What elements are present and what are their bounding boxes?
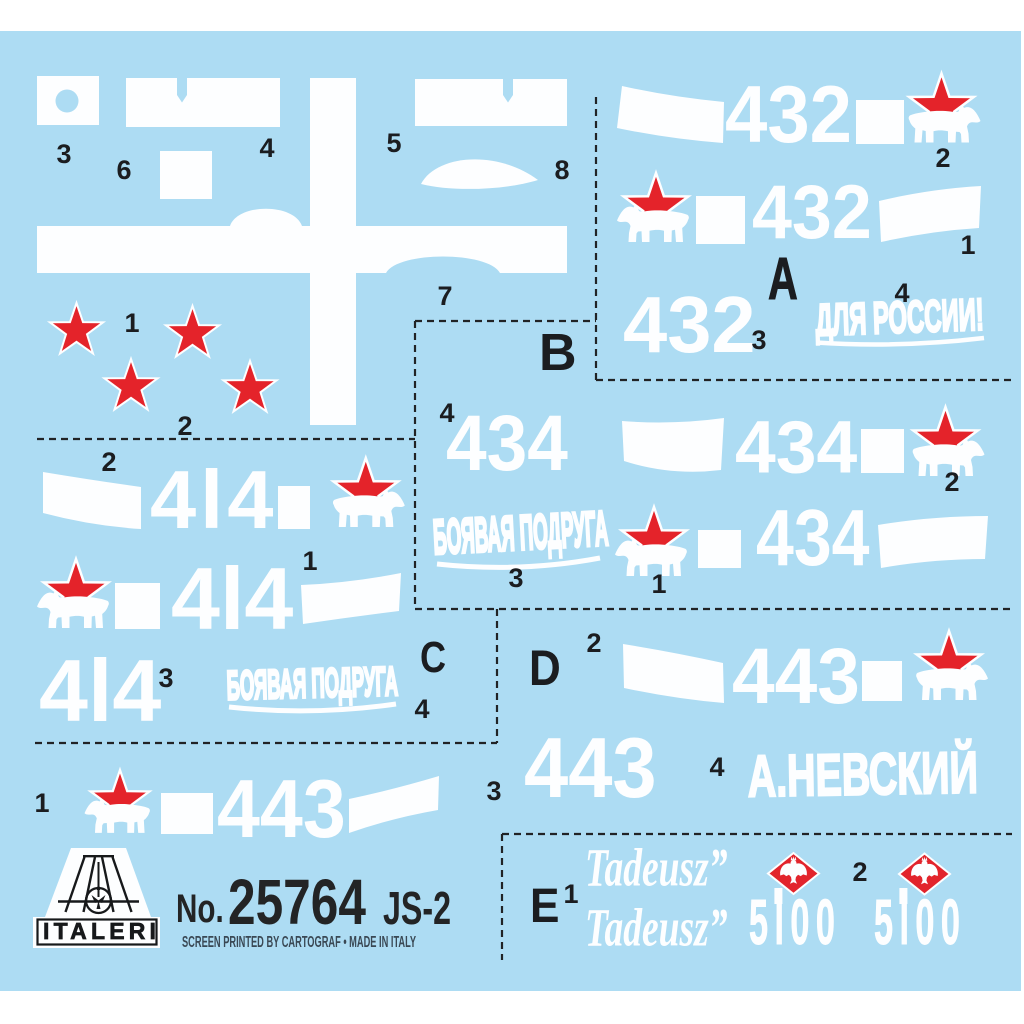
svg-text:434: 434 xyxy=(756,493,869,582)
svg-text:БОЯВАЯ ПОДРУГА: БОЯВАЯ ПОДРУГА xyxy=(432,500,610,565)
svg-text:434: 434 xyxy=(446,399,568,487)
svg-text:3: 3 xyxy=(486,776,501,806)
svg-text:443: 443 xyxy=(524,720,657,815)
svg-text:A: A xyxy=(768,246,798,312)
svg-text:2: 2 xyxy=(101,447,116,477)
svg-text:3: 3 xyxy=(56,139,71,169)
svg-text:5l00: 5l00 xyxy=(749,887,841,958)
svg-text:4: 4 xyxy=(414,694,429,724)
svg-text:8: 8 xyxy=(554,155,569,185)
svg-text:B: B xyxy=(539,324,577,382)
svg-text:2: 2 xyxy=(944,467,959,497)
svg-text:443: 443 xyxy=(732,633,860,720)
svg-text:1: 1 xyxy=(960,230,975,260)
svg-text:Tadeusz”: Tadeusz” xyxy=(585,839,728,898)
svg-text:432: 432 xyxy=(623,280,756,369)
svg-text:2: 2 xyxy=(852,857,867,887)
svg-text:25764: 25764 xyxy=(228,867,366,939)
svg-text:1: 1 xyxy=(651,569,666,599)
svg-text:3: 3 xyxy=(508,563,523,593)
svg-text:БОЯВАЯ ПОДРУГА: БОЯВАЯ ПОДРУГА xyxy=(226,658,399,709)
svg-text:4l4: 4l4 xyxy=(39,641,161,740)
svg-text:5: 5 xyxy=(386,128,401,158)
svg-text:ДЛЯ РОССИИ!: ДЛЯ РОССИИ! xyxy=(815,288,985,345)
svg-text:4: 4 xyxy=(259,133,274,163)
svg-text:1: 1 xyxy=(124,308,139,338)
svg-text:432: 432 xyxy=(725,69,852,160)
svg-text:SCREEN PRINTED BY CARTOGRAF •: SCREEN PRINTED BY CARTOGRAF • MADE IN IT… xyxy=(182,932,416,950)
svg-text:C: C xyxy=(420,633,446,682)
svg-text:3: 3 xyxy=(751,325,766,355)
svg-text:2: 2 xyxy=(935,143,950,173)
svg-text:432: 432 xyxy=(752,169,872,254)
svg-text:7: 7 xyxy=(437,281,452,311)
svg-text:6: 6 xyxy=(116,155,131,185)
svg-text:2: 2 xyxy=(586,628,601,658)
svg-text:4: 4 xyxy=(709,752,724,782)
svg-text:А.НЕВСКИЙ: А.НЕВСКИЙ xyxy=(747,738,978,809)
svg-text:D: D xyxy=(529,639,561,695)
svg-text:No.: No. xyxy=(176,887,224,931)
svg-text:5l00: 5l00 xyxy=(874,887,966,958)
svg-text:Tadeusz”: Tadeusz” xyxy=(585,899,728,958)
svg-text:ITALERI: ITALERI xyxy=(43,918,160,944)
svg-text:4l4: 4l4 xyxy=(150,453,277,546)
svg-text:434: 434 xyxy=(735,405,857,488)
svg-text:1: 1 xyxy=(563,879,578,909)
svg-text:443: 443 xyxy=(217,761,346,854)
svg-text:4l4: 4l4 xyxy=(171,549,293,648)
svg-text:E: E xyxy=(530,878,559,932)
svg-text:1: 1 xyxy=(34,788,49,818)
svg-text:JS-2: JS-2 xyxy=(383,883,451,934)
svg-text:3: 3 xyxy=(158,663,173,693)
svg-text:1: 1 xyxy=(302,546,317,576)
svg-text:2: 2 xyxy=(177,411,192,441)
